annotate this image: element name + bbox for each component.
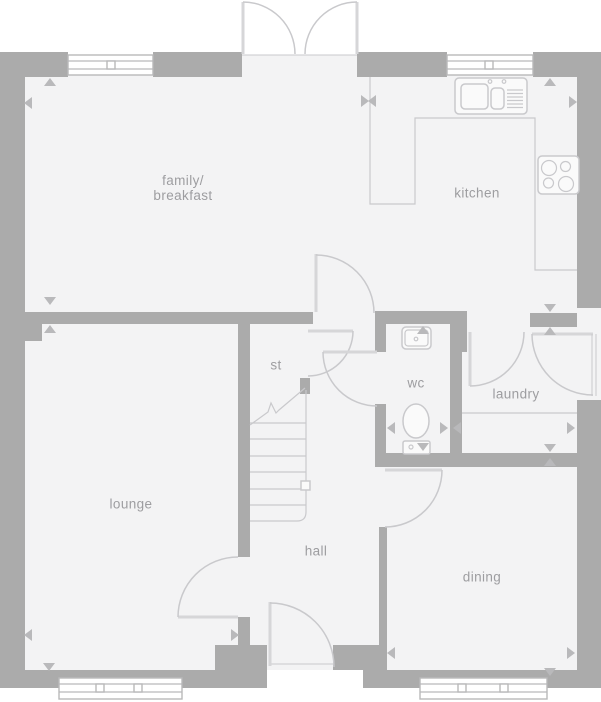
- dimension-marker-up: [417, 326, 429, 334]
- dimension-marker-left: [387, 422, 395, 434]
- dimension-marker-down: [417, 443, 429, 451]
- room-label-store: st: [270, 358, 281, 373]
- room-dining-area: [387, 467, 577, 670]
- dimension-marker-down: [43, 663, 55, 671]
- room-label-dining: dining: [463, 570, 501, 585]
- room-label-family-breakfast: family/ breakfast: [153, 173, 212, 203]
- dimension-marker-up: [44, 325, 56, 333]
- room-label-lounge: lounge: [110, 497, 153, 512]
- floor-plan: family/ breakfast kitchen st wc laundry …: [0, 0, 601, 702]
- room-label-laundry: laundry: [492, 387, 539, 402]
- dimension-marker-up: [544, 458, 556, 466]
- dimension-marker-right: [440, 422, 448, 434]
- dimension-marker-up: [544, 78, 556, 86]
- dimension-marker-left: [453, 422, 461, 434]
- dimension-marker-right: [569, 96, 577, 108]
- dimension-marker-left: [24, 97, 32, 109]
- hob: [538, 156, 579, 194]
- dimension-marker-down: [544, 668, 556, 676]
- dimension-marker-left: [368, 95, 376, 107]
- dimension-marker-down: [44, 297, 56, 305]
- window-kitchen: [447, 55, 533, 75]
- window-lounge: [59, 678, 182, 699]
- room-label-hall: hall: [305, 544, 328, 559]
- dimension-marker-right: [231, 629, 239, 641]
- room-label-wc: wc: [407, 376, 424, 391]
- dimension-marker-down: [544, 444, 556, 452]
- room-label-family-line2: breakfast: [153, 188, 212, 203]
- dimension-marker-up: [44, 78, 56, 86]
- dimension-marker-left: [387, 647, 395, 659]
- stair-newel-post: [301, 481, 310, 490]
- kitchen-sink: [455, 78, 527, 114]
- window-dining: [420, 678, 547, 699]
- floor-plan-graphics: [0, 0, 601, 702]
- dimension-marker-down: [544, 304, 556, 312]
- dimension-marker-right: [567, 422, 575, 434]
- dimension-marker-up: [544, 327, 556, 335]
- room-hall-area: [250, 324, 379, 645]
- french-doors: [242, 2, 357, 55]
- window-family: [68, 55, 153, 75]
- room-label-kitchen: kitchen: [454, 186, 500, 201]
- room-label-family-line1: family/: [162, 173, 204, 188]
- dimension-marker-right: [567, 647, 575, 659]
- dimension-marker-left: [24, 629, 32, 641]
